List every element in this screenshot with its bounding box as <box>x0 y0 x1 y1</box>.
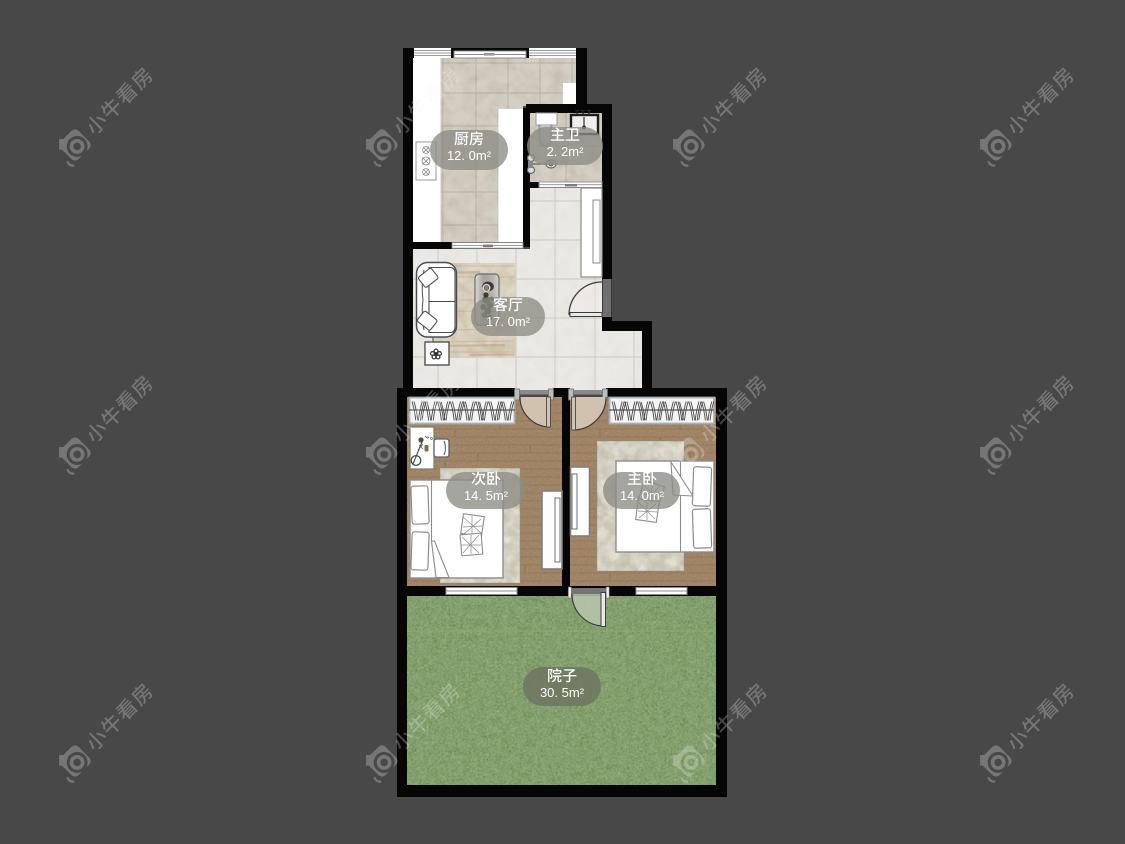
svg-text:30. 5m²: 30. 5m² <box>540 685 585 700</box>
svg-text:17. 0m²: 17. 0m² <box>486 314 531 329</box>
svg-text:12. 0m²: 12. 0m² <box>447 148 492 163</box>
svg-text:14. 0m²: 14. 0m² <box>620 488 665 503</box>
svg-text:2. 2m²: 2. 2m² <box>547 144 585 159</box>
svg-text:14. 5m²: 14. 5m² <box>464 488 509 503</box>
